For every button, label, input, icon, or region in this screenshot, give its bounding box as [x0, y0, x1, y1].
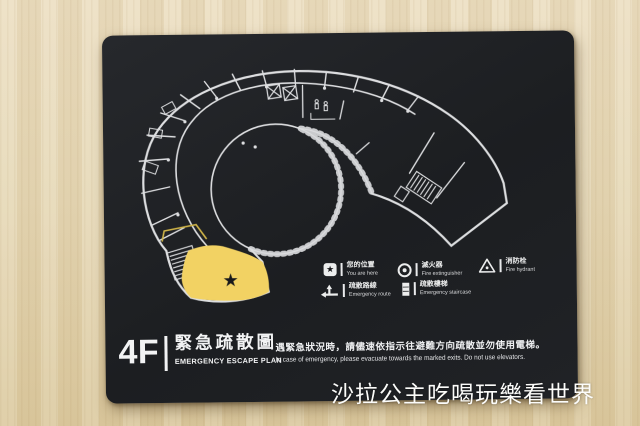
legend-divider — [499, 259, 501, 272]
door-dots — [166, 84, 411, 217]
you-are-here-star: ★ — [223, 270, 239, 290]
right-wing-walls — [409, 133, 465, 199]
you-are-here-icon: ★ — [324, 263, 337, 276]
escalator-entry-line — [356, 143, 369, 154]
legend-divider — [343, 284, 345, 297]
title-divider — [164, 336, 168, 371]
legend-divider — [414, 282, 416, 295]
legend-fire-hydrant: 消防栓 Fire hydrant — [478, 258, 535, 274]
legend-you-are-here: ★ 您的位置 You are here — [324, 262, 378, 278]
notice-block: 遇緊急狀況時，請儘速依指示往避難方向疏散並勿使用電梯。 In case of e… — [275, 337, 535, 364]
legend-emergency-staircase: 疏散樓梯 Emergency staircase — [402, 281, 472, 297]
staircase-right-icon — [394, 169, 441, 216]
fire-extinguisher-icon — [398, 263, 412, 277]
escalator-arc-ticks — [249, 128, 372, 255]
legend-fire-extinguisher: 滅火器 Fire extinguisher — [398, 262, 463, 278]
corridor-wall-path — [175, 82, 416, 247]
legend-label-en: Emergency route — [349, 291, 391, 298]
floor-label: 4F — [118, 335, 159, 369]
escape-plan-sign: ★ ★ 您的位置 You are here 滅火器 Fire extinguis… — [102, 30, 578, 403]
atrium-wall-arc — [210, 124, 300, 250]
watermark-text: 沙拉公主吃喝玩樂看世界 — [331, 375, 595, 409]
legend-label-en: You are here — [347, 270, 378, 277]
corridor-cross-walls — [303, 85, 344, 119]
photo-of-escape-plan: { "sign": { "floor_label": "4F", "title_… — [0, 0, 640, 426]
legend-label-zh: 您的位置 — [347, 262, 378, 271]
page-title: 緊急疏散圖 — [174, 332, 277, 353]
restroom-icons — [311, 99, 335, 119]
legend-label-zh: 消防栓 — [505, 258, 534, 267]
legend-divider — [341, 263, 343, 276]
page-subtitle: EMERGENCY ESCAPE PLAN — [175, 356, 282, 366]
escalator-arc-base — [249, 128, 372, 255]
emergency-staircase-icon — [402, 282, 410, 296]
room-furniture — [141, 102, 176, 175]
legend-label-en: Fire extinguisher — [422, 270, 463, 277]
room-partition-walls — [138, 68, 420, 240]
elevator-icons — [266, 82, 297, 103]
title-block: 4F 緊急疏散圖 EMERGENCY ESCAPE PLAN — [118, 334, 282, 372]
legend-label-en: Fire hydrant — [506, 267, 535, 274]
notice-text-zh: 遇緊急狀況時，請儘速依指示往避難方向疏散並勿使用電梯。 — [275, 337, 535, 354]
legend-divider — [416, 263, 418, 276]
legend-emergency-route: 疏散路線 Emergency route — [320, 282, 391, 298]
fire-hydrant-icon — [478, 259, 495, 274]
emergency-route-icon — [320, 284, 339, 298]
legend-label-en: Emergency staircase — [420, 289, 471, 296]
